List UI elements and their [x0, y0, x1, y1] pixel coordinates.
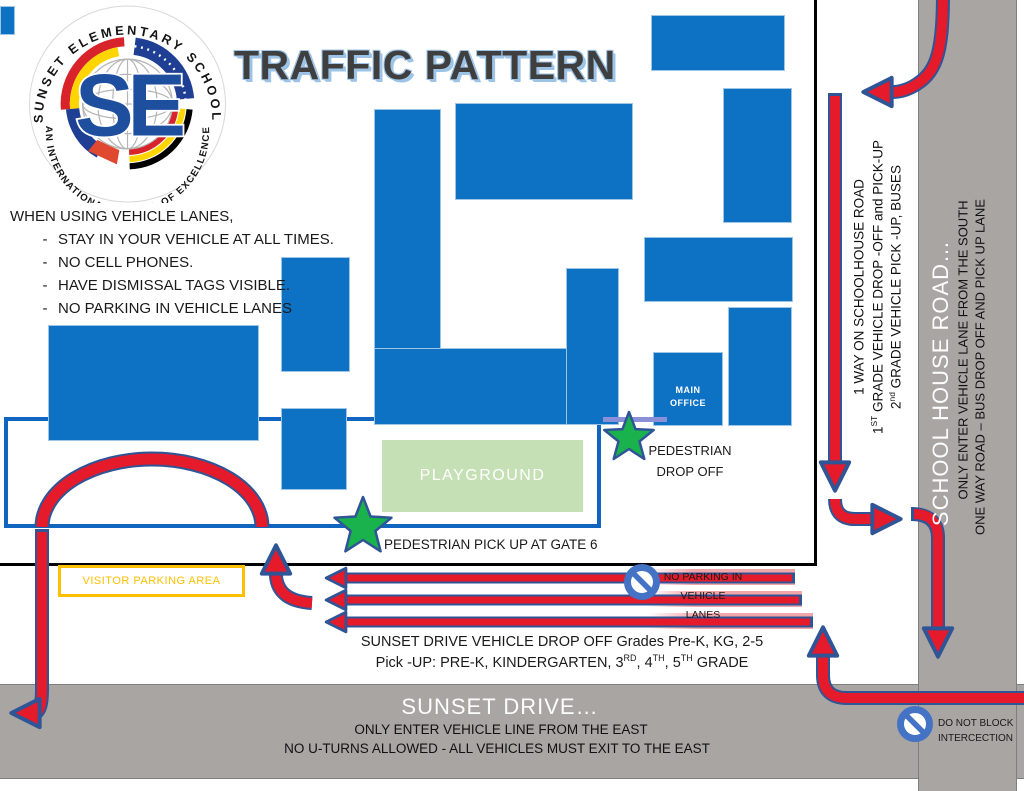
pedestrian-dropoff-label: PEDESTRIAN DROP OFF: [645, 440, 735, 482]
line-pickup-loop-arc: [42, 459, 262, 527]
sunset-dropoff-note: SUNSET DRIVE VEHICLE DROP OFF Grades Pre…: [252, 634, 872, 650]
rule-bullet: -: [32, 251, 58, 274]
rule-bullet: -: [32, 297, 58, 320]
rule-item: - NO PARKING IN VEHICLE LANES: [10, 297, 370, 320]
do-not-block-label: DO NOT BLOCK INTERCECTION: [938, 716, 1018, 746]
sunset-drive-name: SUNSET DRIVE…: [401, 694, 598, 720]
rule-text: HAVE DISMISSAL TAGS VISIBLE.: [58, 274, 290, 297]
schoolhouse-side-note-3: 2nd GRADE VEHICLE PICK -UP, BUSES: [889, 165, 904, 409]
vehicle-lane-rules: WHEN USING VEHICLE LANES, - STAY IN YOUR…: [10, 205, 370, 320]
page-title: TRAFFIC PATTERN: [234, 42, 616, 89]
line-road-southbound: [911, 514, 938, 634]
traffic-pattern-map: PLAYGROUND MAIN OFFICE VISITOR PARKING A…: [0, 0, 1024, 791]
rule-bullet: -: [32, 228, 58, 251]
arrow-arrival-north: [884, 0, 943, 92]
arrow-exit-west: [34, 529, 42, 713]
do-not-block-icon: [901, 710, 930, 739]
arrow-loop-entry: [276, 568, 312, 603]
rule-text: NO CELL PHONES.: [58, 251, 193, 274]
rule-bullet: -: [32, 274, 58, 297]
sunset-pickup-note: Pick -UP: PRE-K, KINDERGARTEN, 3RD, 4TH,…: [252, 655, 872, 671]
arrow-exit-to-road: [835, 499, 878, 519]
rule-text: STAY IN YOUR VEHICLE AT ALL TIMES.: [58, 228, 334, 251]
sunset-drive-note-1: ONLY ENTER VEHICLE LINE FROM THE EAST: [354, 722, 647, 737]
schoolhouse-on-road-note-2: ONE WAY ROAD – BUS DROP OFF AND PICK UP …: [973, 199, 988, 535]
rule-item: - STAY IN YOUR VEHICLE AT ALL TIMES.: [10, 228, 370, 251]
rule-item: - NO CELL PHONES.: [10, 251, 370, 274]
no-parking-label: NO PARKING IN VEHICLE LANES: [662, 568, 744, 625]
schoolhouse-on-road-note-1: ONLY ENTER VEHICLE LANE FROM THE SOUTH: [956, 200, 971, 499]
rule-item: - HAVE DISMISSAL TAGS VISIBLE.: [10, 274, 370, 297]
school-logo: SE SUNSET ELEMENTARY SCHOOL AN INTERNATI…: [25, 5, 230, 203]
pedestrian-pickup-label: PEDESTRIAN PICK UP AT GATE 6: [384, 537, 598, 552]
rule-text: NO PARKING IN VEHICLE LANES: [58, 297, 292, 320]
school-house-road-name: SCHOOL HOUSE ROAD…: [928, 240, 954, 526]
schoolhouse-side-note-2: 1ST GRADE VEHICLE DROP -OFF and PICK-UP: [871, 140, 886, 434]
rules-heading: WHEN USING VEHICLE LANES,: [10, 205, 370, 228]
schoolhouse-side-note-1: 1 WAY ON SCHOOLHOUSE ROAD: [852, 179, 867, 395]
sunset-drive-note-2: NO U-TURNS ALLOWED - ALL VEHICLES MUST E…: [284, 741, 710, 756]
no-parking-icon: [628, 568, 657, 597]
logo-monogram: SE: [75, 57, 183, 155]
star-pedestrian-pickup-icon: [335, 497, 392, 551]
